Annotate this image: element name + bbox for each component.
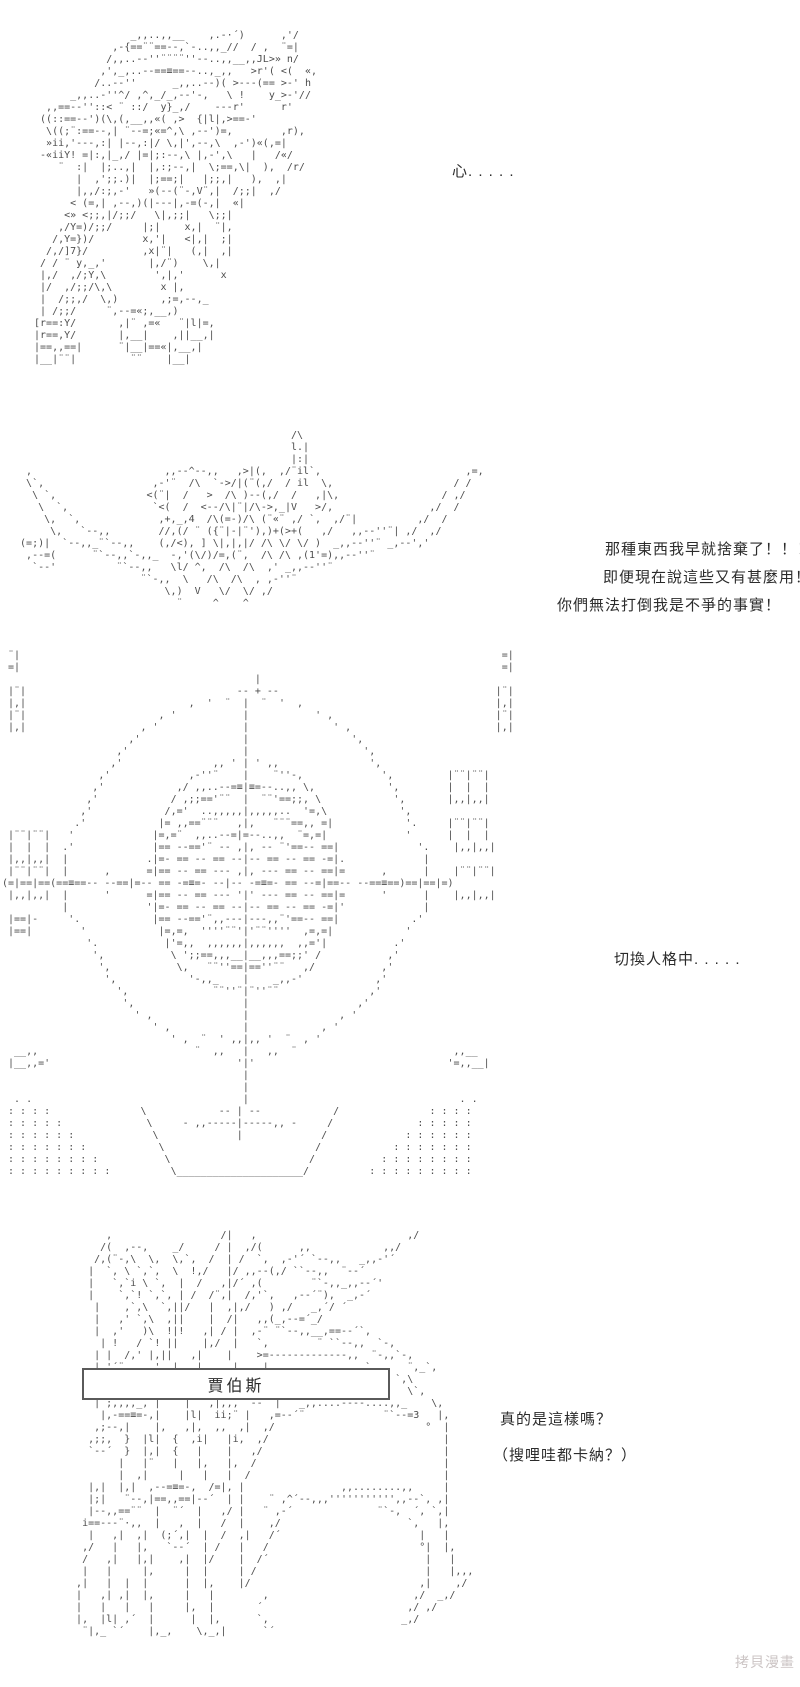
ascii-art-cape-character: , /| , ,/ /( ,--, _/ / | ,/( ,, ,,/ /,(¨…	[58, 1230, 473, 1638]
ascii-art-reticle: ¨| =| =| =|	[2, 650, 514, 1178]
comic-page: _,,..,,__ ,.-·´) ,'/ ,-{==¨¨==--,`-..,,_…	[0, 0, 800, 1687]
name-box-label: 賈伯斯	[207, 1372, 264, 1396]
dialogue-rant-line-2: 即便現在說這些又有甚麼用！	[603, 564, 800, 592]
dialogue-rant-line-3: 你們無法打倒我是不爭的事實！	[557, 592, 800, 620]
dialogue-phonetic-line: （搜哩哇都卡納？）	[493, 1444, 637, 1465]
dialogue-persona-switch: 切換人格中. . . . .	[614, 948, 741, 969]
ascii-art-winged-head: /\ l.| |:| , ,,--^--,, ,>|(, ,/¨il`, ,=,…	[8, 430, 484, 610]
dialogue-really-line: 真的是這樣嗎？	[500, 1408, 612, 1429]
dialogue-rant-line-1: 那種東西我早就捨棄了！！！	[605, 536, 800, 564]
name-box: 賈伯斯	[82, 1368, 390, 1400]
dialogue-block-rant: 那種東西我早就捨棄了！！！ 即便現在說這些又有甚麼用！ 你們無法打倒我是不爭的事…	[557, 536, 800, 620]
ascii-art-mecha: _,,..,,__ ,.-·´) ,'/ ,-{==¨¨==--,`-..,,_…	[28, 30, 317, 366]
site-watermark: 拷貝漫畫	[735, 1652, 795, 1672]
dialogue-heart: 心. . . . .	[452, 160, 515, 181]
